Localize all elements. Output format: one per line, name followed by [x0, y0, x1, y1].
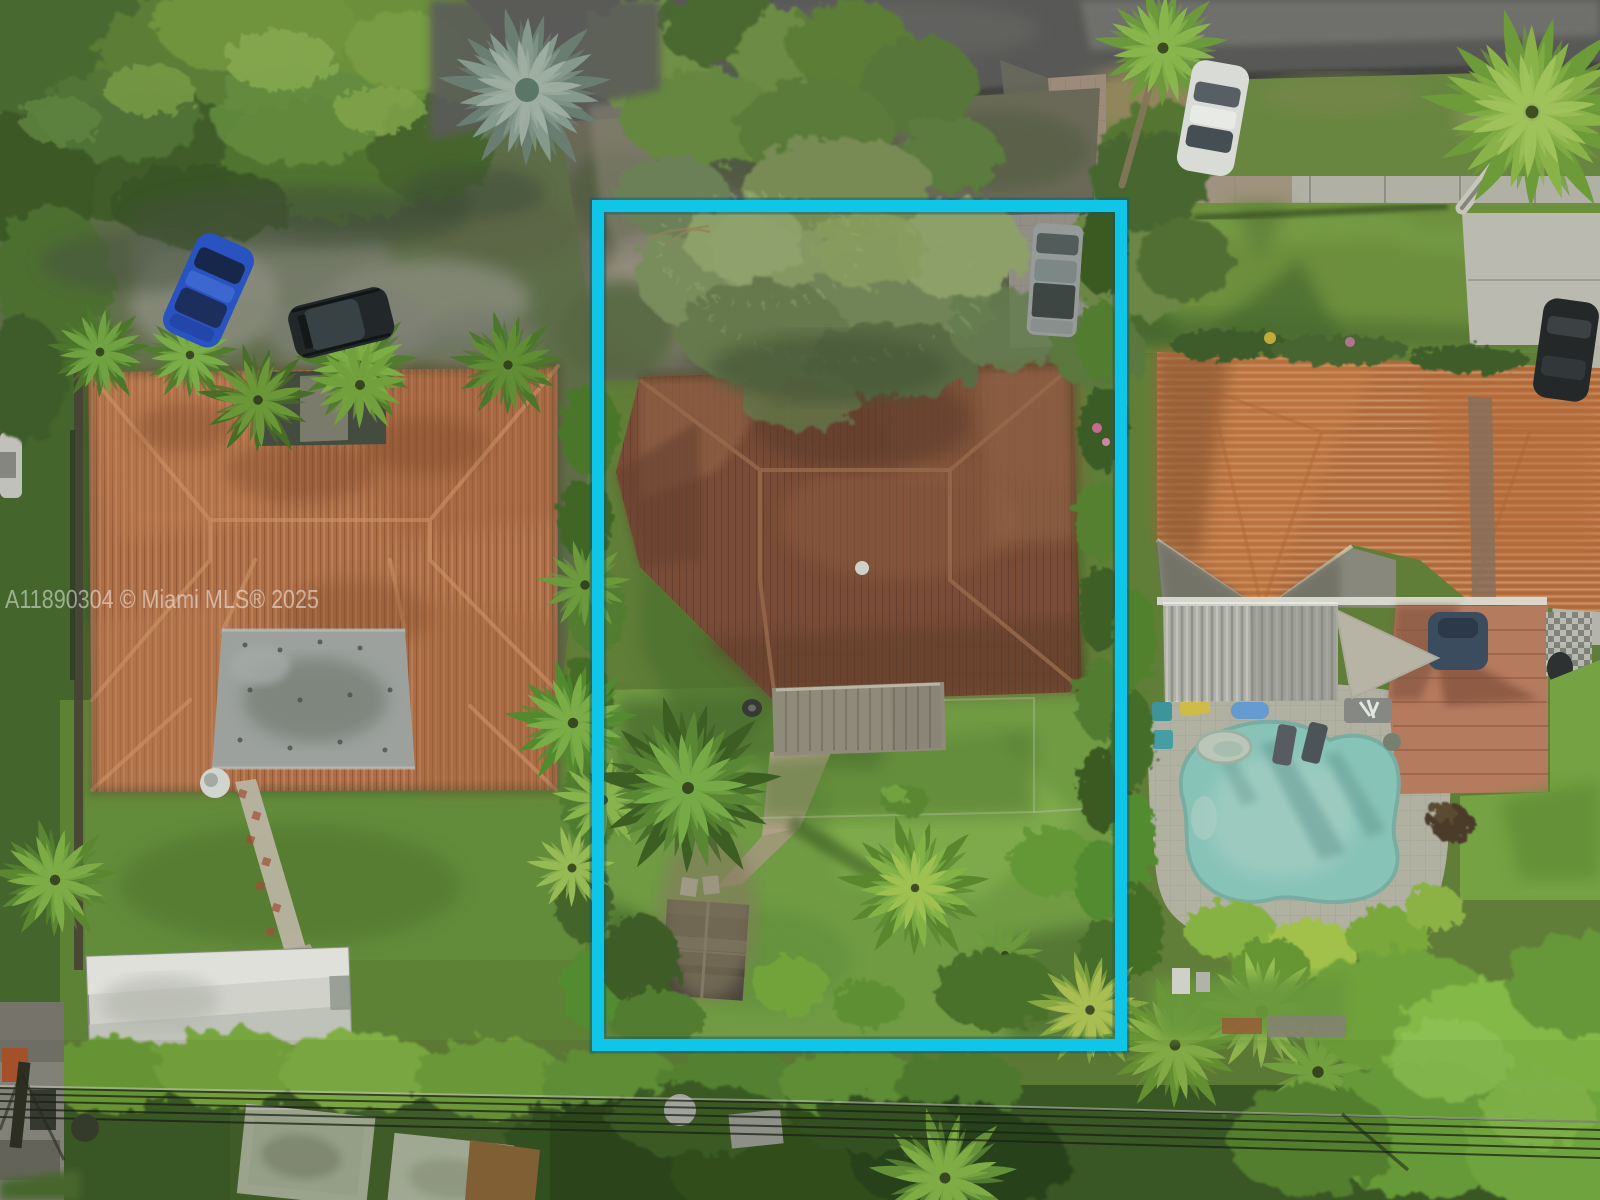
svg-text:A11890304 © Miami MLS® 2025: A11890304 © Miami MLS® 2025 [5, 584, 319, 614]
